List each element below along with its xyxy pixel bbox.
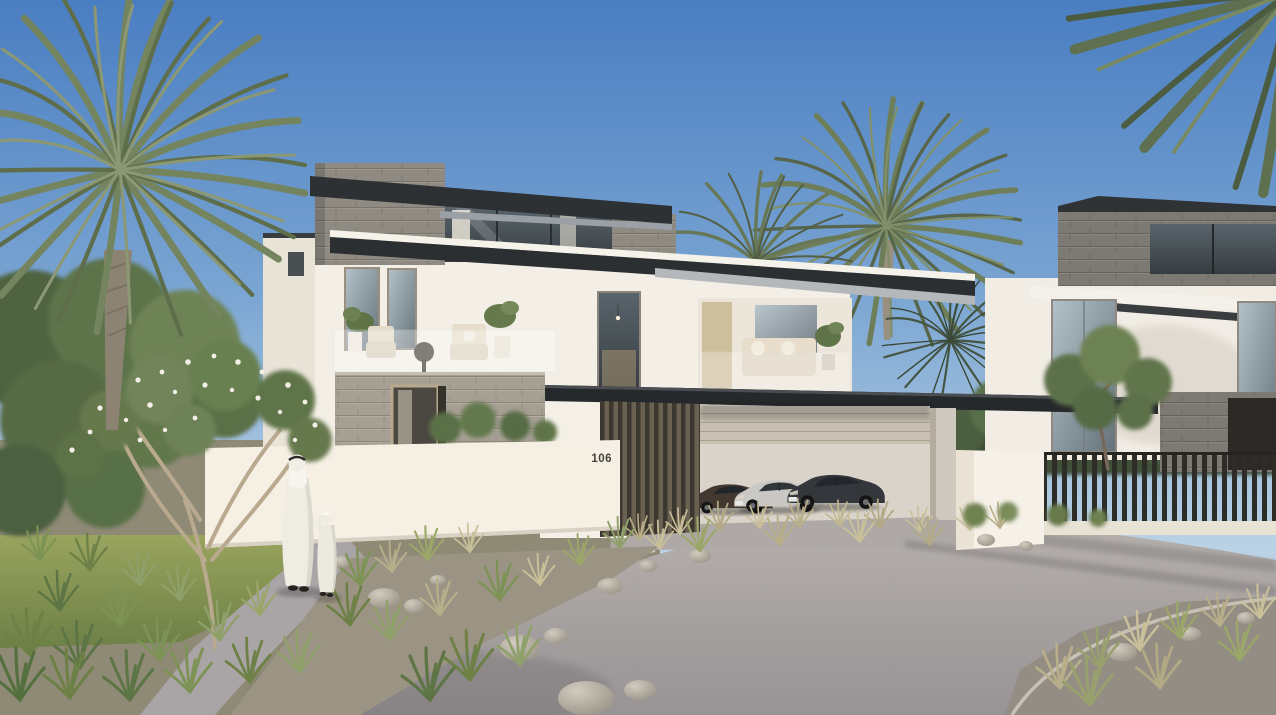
house-number-sign: 106 (591, 453, 612, 465)
terrace-glass-balustrade (334, 330, 556, 372)
balcony (698, 298, 852, 394)
metal-slat-fence (1044, 452, 1276, 535)
right-garden-wall (956, 450, 1044, 550)
scene-architectural-rendering: 106 (0, 0, 1276, 715)
rendering-canvas: 106 (0, 0, 1276, 715)
